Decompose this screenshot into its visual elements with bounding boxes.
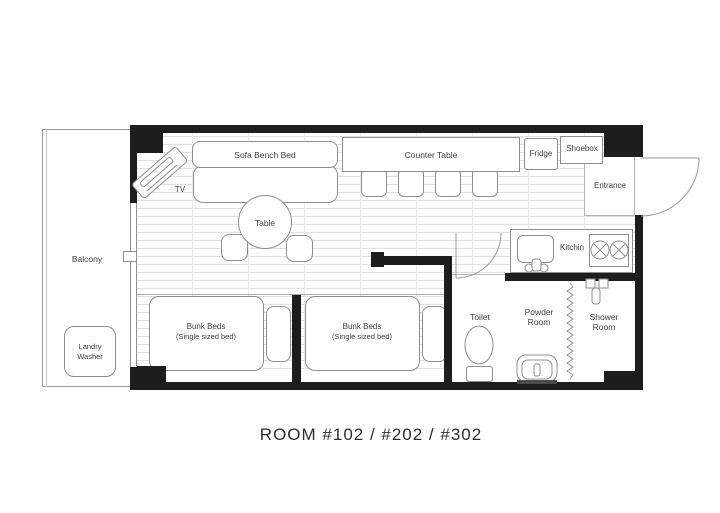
table-label: Table <box>255 218 275 228</box>
counter-stool <box>435 168 461 197</box>
balcony-inner-line <box>46 129 47 387</box>
bunk-beds-1-label: Bunk Beds (Single sized bed) <box>176 322 236 342</box>
counter-stool <box>398 168 424 197</box>
toilet-tank <box>466 366 493 382</box>
kitchen-stove <box>589 234 629 267</box>
floor-plan: Balcony Landry Washer TV Sofa Bench Bed … <box>0 0 720 513</box>
bunk-beds-2-label: Bunk Beds (Single sized bed) <box>332 322 392 342</box>
entrance-label: Entrance <box>594 181 626 191</box>
toilet-label: Toilet <box>470 312 490 322</box>
wall-top-right-pillar <box>604 125 643 157</box>
powder-room-label: Powder Room <box>525 307 554 327</box>
counter-stool <box>472 168 498 197</box>
window-handle-icon <box>123 251 137 262</box>
wall-left-upper <box>130 131 137 203</box>
balcony-label: Balcony <box>72 254 102 264</box>
kitchen-sink <box>517 235 554 263</box>
sofa-bench-bed-label: Sofa Bench Bed <box>234 150 295 160</box>
wall-bunk-divider <box>292 295 301 383</box>
wall-top <box>130 125 643 133</box>
bunk-bed-1-pillow <box>266 306 291 362</box>
wall-right <box>635 215 643 385</box>
bunk-room-front-line <box>137 294 444 295</box>
wall-bottom <box>130 382 643 390</box>
shoebox-label: Shoebox <box>566 144 598 154</box>
tv-label: TV <box>175 185 185 195</box>
balcony-window <box>130 203 137 367</box>
entrance-door-arc-icon <box>641 158 699 216</box>
wall-bathroom-left <box>444 256 452 383</box>
wall-partition-cap <box>371 252 384 267</box>
bathroom-threshold-line <box>452 274 508 275</box>
laundry-washer-label: Landry Washer <box>77 342 103 362</box>
wall-shower-corner-block <box>604 371 635 383</box>
counter-table-label: Counter Table <box>405 150 458 160</box>
wall-kitchen-bottom <box>505 273 635 281</box>
page-title: ROOM #102 / #202 / #302 <box>260 425 482 445</box>
shower-room-label: Shower Room <box>590 312 619 332</box>
fridge-label: Fridge <box>530 149 553 159</box>
chair <box>286 235 313 262</box>
kitchen-label: Kitchin <box>560 243 584 253</box>
counter-stool <box>361 168 387 197</box>
wall-partition-horizontal <box>374 256 452 265</box>
